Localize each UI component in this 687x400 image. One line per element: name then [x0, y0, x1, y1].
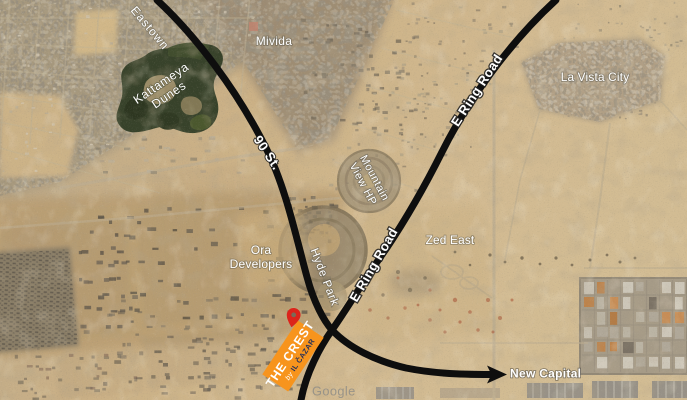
svg-text:Ora: Ora	[251, 243, 272, 257]
svg-text:La Vista City: La Vista City	[561, 70, 630, 84]
svg-text:Developers: Developers	[230, 257, 293, 271]
svg-text:Mivida: Mivida	[256, 34, 293, 48]
svg-text:New Capital: New Capital	[510, 367, 581, 381]
svg-text:Zed East: Zed East	[426, 233, 475, 247]
svg-text:Google: Google	[312, 384, 356, 399]
